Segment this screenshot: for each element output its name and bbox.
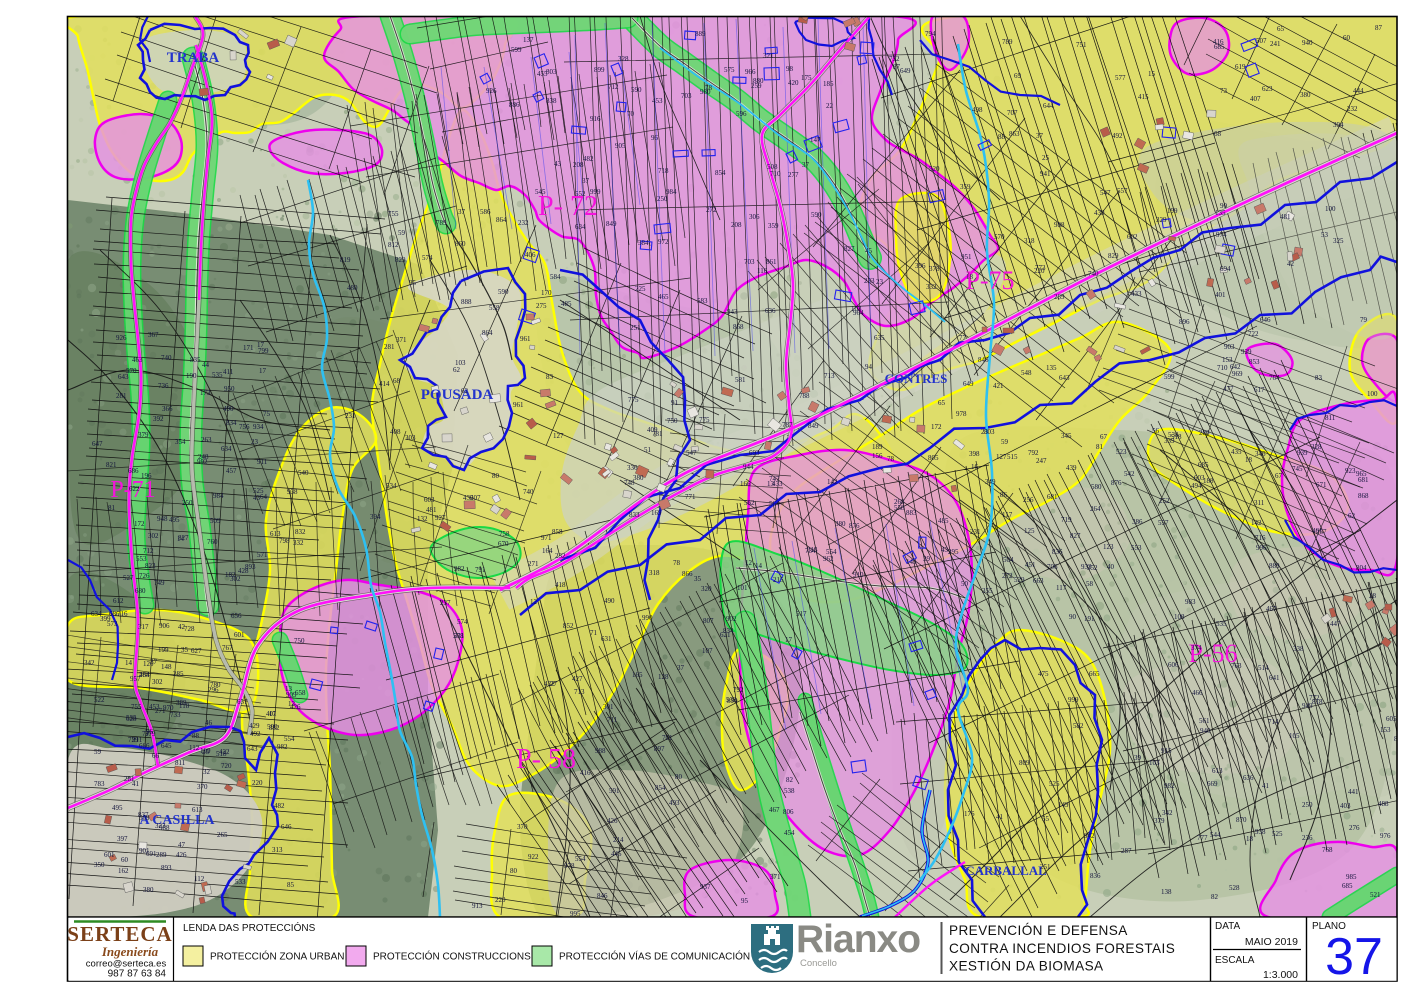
- svg-text:281: 281: [384, 343, 395, 351]
- svg-text:421: 421: [993, 382, 1004, 390]
- svg-text:835: 835: [190, 356, 201, 364]
- svg-text:714: 714: [1268, 718, 1279, 726]
- svg-text:370: 370: [197, 783, 208, 791]
- svg-text:16: 16: [971, 463, 979, 471]
- svg-text:120: 120: [143, 660, 154, 668]
- svg-text:517: 517: [796, 610, 807, 618]
- svg-text:37: 37: [677, 664, 685, 672]
- svg-text:CONTRES: CONTRES: [885, 371, 948, 386]
- svg-text:414: 414: [379, 380, 390, 388]
- svg-text:590: 590: [631, 86, 642, 94]
- svg-text:418: 418: [555, 581, 566, 589]
- svg-text:105: 105: [1289, 732, 1300, 740]
- svg-text:957: 957: [130, 675, 141, 683]
- svg-text:752: 752: [889, 55, 900, 63]
- svg-text:A CASILLA: A CASILLA: [139, 813, 215, 828]
- svg-text:109: 109: [200, 747, 211, 755]
- svg-text:463: 463: [132, 356, 143, 364]
- svg-text:100: 100: [1367, 390, 1378, 398]
- svg-text:137: 137: [523, 36, 534, 44]
- svg-text:544: 544: [1210, 831, 1221, 839]
- svg-text:78: 78: [673, 559, 681, 567]
- svg-text:961: 961: [520, 335, 531, 343]
- svg-text:43: 43: [941, 546, 949, 554]
- svg-text:59: 59: [1001, 438, 1009, 446]
- svg-text:990: 990: [642, 614, 653, 622]
- svg-text:73: 73: [1220, 87, 1228, 95]
- svg-text:490: 490: [604, 597, 615, 605]
- svg-text:252: 252: [1159, 497, 1170, 505]
- svg-text:77: 77: [142, 730, 150, 738]
- svg-text:518: 518: [1171, 433, 1182, 441]
- svg-text:535: 535: [1216, 620, 1227, 628]
- svg-text:934: 934: [253, 423, 264, 431]
- svg-text:46: 46: [205, 719, 213, 727]
- svg-text:603: 603: [1194, 474, 1205, 482]
- svg-text:POUSADA: POUSADA: [421, 387, 494, 403]
- svg-text:366: 366: [162, 405, 173, 413]
- svg-text:846: 846: [597, 892, 608, 900]
- svg-text:380: 380: [835, 520, 846, 528]
- svg-text:504: 504: [1003, 556, 1014, 564]
- svg-text:149: 149: [1058, 801, 1069, 809]
- svg-text:147: 147: [810, 136, 821, 144]
- svg-text:666: 666: [139, 742, 150, 750]
- svg-text:107: 107: [702, 647, 713, 655]
- svg-text:461: 461: [1312, 527, 1323, 535]
- svg-text:328: 328: [1311, 443, 1322, 451]
- svg-text:490: 490: [223, 405, 234, 413]
- svg-text:428: 428: [238, 567, 249, 575]
- svg-text:961: 961: [513, 401, 524, 409]
- svg-text:65: 65: [938, 399, 946, 407]
- svg-text:950: 950: [224, 385, 235, 393]
- svg-text:482: 482: [583, 155, 594, 163]
- svg-text:909: 909: [286, 691, 297, 699]
- svg-text:332: 332: [293, 539, 304, 547]
- svg-text:740: 740: [1088, 270, 1099, 278]
- svg-text:371: 371: [396, 336, 407, 344]
- svg-text:367: 367: [148, 331, 159, 339]
- svg-text:43: 43: [253, 494, 261, 502]
- svg-text:570: 570: [994, 233, 1005, 241]
- svg-text:590: 590: [811, 211, 822, 219]
- svg-text:561: 561: [1199, 717, 1210, 725]
- svg-text:41: 41: [1262, 782, 1270, 790]
- svg-text:342: 342: [84, 659, 95, 667]
- svg-text:62: 62: [453, 366, 461, 374]
- svg-text:Concello: Concello: [800, 958, 837, 969]
- svg-text:854: 854: [715, 169, 726, 177]
- svg-text:896: 896: [1179, 318, 1190, 326]
- svg-text:380: 380: [143, 886, 154, 894]
- svg-text:453: 453: [149, 703, 160, 711]
- svg-text:422: 422: [219, 748, 230, 756]
- svg-text:495: 495: [169, 516, 180, 524]
- svg-text:612: 612: [113, 597, 124, 605]
- svg-text:345: 345: [1061, 432, 1072, 440]
- svg-text:408: 408: [390, 428, 401, 436]
- svg-text:301: 301: [603, 703, 614, 711]
- svg-text:599: 599: [511, 46, 522, 54]
- svg-text:691: 691: [146, 850, 157, 858]
- svg-text:809: 809: [1019, 759, 1030, 767]
- svg-text:868: 868: [733, 323, 744, 331]
- svg-text:603: 603: [424, 496, 435, 504]
- svg-text:937: 937: [700, 883, 711, 891]
- svg-text:176: 176: [964, 810, 975, 818]
- svg-text:583: 583: [697, 297, 708, 305]
- svg-text:944: 944: [743, 463, 754, 471]
- svg-text:923: 923: [1345, 467, 1356, 475]
- svg-text:755: 755: [131, 703, 142, 711]
- svg-text:649: 649: [900, 67, 911, 75]
- svg-text:103: 103: [1149, 759, 1160, 767]
- svg-text:302: 302: [152, 678, 163, 686]
- svg-text:712: 712: [143, 547, 154, 555]
- svg-text:250: 250: [1302, 801, 1313, 809]
- svg-text:247: 247: [1036, 457, 1047, 465]
- svg-text:83: 83: [1315, 374, 1323, 382]
- svg-text:942: 942: [1084, 832, 1095, 840]
- svg-text:191: 191: [1084, 615, 1095, 623]
- svg-text:285: 285: [173, 670, 184, 678]
- svg-text:25: 25: [1042, 154, 1050, 162]
- svg-text:1:3.000: 1:3.000: [1263, 969, 1298, 981]
- svg-text:407: 407: [1250, 95, 1261, 103]
- svg-text:685: 685: [1342, 882, 1353, 890]
- svg-text:495: 495: [112, 804, 123, 812]
- svg-text:359: 359: [960, 183, 971, 191]
- svg-text:338: 338: [1293, 645, 1304, 653]
- svg-text:447: 447: [1330, 620, 1341, 628]
- svg-text:68: 68: [393, 377, 401, 385]
- svg-text:220: 220: [252, 779, 263, 787]
- svg-text:SERTECA: SERTECA: [67, 922, 172, 946]
- svg-text:196: 196: [141, 472, 152, 480]
- svg-text:760: 760: [207, 538, 218, 546]
- svg-text:231: 231: [345, 412, 356, 420]
- svg-text:493: 493: [669, 799, 680, 807]
- svg-text:190: 190: [186, 372, 197, 380]
- svg-text:525: 525: [1049, 780, 1060, 788]
- svg-text:62: 62: [1348, 512, 1356, 520]
- svg-text:467: 467: [1266, 605, 1277, 613]
- svg-text:466: 466: [1192, 689, 1203, 697]
- svg-text:281: 281: [116, 392, 127, 400]
- svg-text:482: 482: [274, 802, 285, 810]
- svg-text:439: 439: [1066, 464, 1077, 472]
- svg-text:913: 913: [472, 902, 483, 910]
- svg-text:889: 889: [1269, 562, 1280, 570]
- svg-text:23: 23: [981, 428, 989, 436]
- svg-text:527: 527: [123, 574, 134, 582]
- svg-text:943: 943: [727, 308, 738, 316]
- svg-text:117: 117: [1056, 584, 1067, 592]
- svg-text:758: 758: [499, 530, 510, 538]
- svg-text:726: 726: [139, 572, 150, 580]
- svg-text:529: 529: [1014, 576, 1025, 584]
- svg-text:978: 978: [956, 410, 967, 418]
- svg-text:12: 12: [745, 559, 753, 567]
- svg-text:90: 90: [1069, 613, 1077, 621]
- svg-text:671: 671: [1316, 481, 1327, 489]
- svg-text:911: 911: [257, 458, 268, 466]
- svg-text:18: 18: [1245, 456, 1253, 464]
- svg-text:643: 643: [247, 745, 258, 753]
- svg-text:706: 706: [1047, 563, 1058, 571]
- svg-text:380: 380: [1300, 91, 1311, 99]
- svg-text:272: 272: [706, 206, 717, 214]
- svg-text:401: 401: [1215, 291, 1226, 299]
- svg-text:236: 236: [1302, 834, 1313, 842]
- svg-text:188: 188: [1203, 477, 1214, 485]
- svg-text:81: 81: [108, 504, 116, 512]
- svg-text:868: 868: [1358, 492, 1369, 500]
- svg-text:613: 613: [1212, 767, 1223, 775]
- svg-text:17: 17: [269, 710, 277, 718]
- svg-text:384: 384: [638, 239, 649, 247]
- svg-text:116: 116: [757, 267, 768, 275]
- svg-text:Ingeniería: Ingeniería: [101, 944, 159, 959]
- svg-text:18: 18: [966, 273, 974, 281]
- svg-text:480: 480: [347, 284, 358, 292]
- svg-text:185: 185: [823, 80, 834, 88]
- svg-text:571: 571: [257, 551, 268, 559]
- svg-text:439: 439: [1094, 209, 1105, 217]
- svg-text:601: 601: [104, 851, 115, 859]
- svg-text:915: 915: [1161, 747, 1172, 755]
- svg-text:812: 812: [388, 241, 399, 249]
- svg-text:411: 411: [223, 368, 234, 376]
- svg-text:DATA: DATA: [1215, 921, 1241, 932]
- svg-text:277: 277: [788, 171, 799, 179]
- svg-text:941: 941: [1040, 170, 1051, 178]
- svg-text:635: 635: [874, 334, 885, 342]
- svg-text:77: 77: [959, 334, 967, 342]
- svg-text:451: 451: [1025, 561, 1036, 569]
- svg-text:938: 938: [1255, 828, 1266, 836]
- svg-text:926: 926: [486, 87, 497, 95]
- svg-text:415: 415: [1138, 93, 1149, 101]
- svg-text:507: 507: [1256, 37, 1267, 45]
- svg-text:80: 80: [675, 773, 683, 781]
- svg-text:888: 888: [461, 298, 472, 306]
- svg-text:574: 574: [422, 254, 433, 262]
- svg-text:379: 379: [138, 431, 149, 439]
- svg-text:PROTECCIÓN CONSTRUCCIONS: PROTECCIÓN CONSTRUCCIONS: [373, 950, 531, 963]
- svg-text:403: 403: [1340, 802, 1351, 810]
- svg-text:80: 80: [510, 867, 518, 875]
- svg-text:554: 554: [284, 735, 295, 743]
- svg-text:670: 670: [498, 540, 509, 548]
- svg-text:272: 272: [1002, 572, 1013, 580]
- svg-text:982: 982: [1164, 782, 1175, 790]
- svg-text:978: 978: [564, 862, 575, 870]
- svg-text:980: 980: [700, 88, 711, 96]
- svg-text:37: 37: [582, 177, 590, 185]
- svg-text:906: 906: [159, 622, 170, 630]
- svg-text:829: 829: [1108, 252, 1119, 260]
- svg-text:371: 371: [770, 873, 781, 881]
- svg-text:982: 982: [277, 743, 288, 751]
- svg-text:893: 893: [161, 864, 172, 872]
- svg-text:876: 876: [1111, 479, 1122, 487]
- svg-text:35: 35: [181, 646, 189, 654]
- svg-text:79: 79: [1360, 316, 1368, 324]
- svg-text:349: 349: [985, 478, 996, 486]
- svg-text:90: 90: [1220, 202, 1228, 210]
- svg-text:69: 69: [1014, 72, 1022, 80]
- svg-text:123: 123: [1103, 543, 1114, 551]
- svg-text:806: 806: [783, 808, 794, 816]
- svg-text:710: 710: [1217, 364, 1228, 372]
- svg-text:189: 189: [872, 443, 883, 451]
- svg-text:562: 562: [744, 499, 755, 507]
- svg-text:435: 435: [1231, 448, 1242, 456]
- svg-text:303: 303: [405, 434, 416, 442]
- svg-text:275: 275: [536, 302, 547, 310]
- svg-text:ESCALA: ESCALA: [1215, 955, 1255, 966]
- svg-text:819: 819: [340, 256, 351, 264]
- svg-text:318: 318: [1024, 237, 1035, 245]
- svg-text:232: 232: [555, 552, 566, 560]
- svg-text:969: 969: [1232, 370, 1243, 378]
- svg-text:295: 295: [948, 548, 959, 556]
- svg-text:938: 938: [287, 488, 298, 496]
- svg-text:220: 220: [1034, 267, 1045, 275]
- svg-text:86: 86: [1000, 491, 1008, 499]
- svg-text:65: 65: [1277, 25, 1285, 33]
- svg-text:454: 454: [784, 829, 795, 837]
- svg-text:317: 317: [138, 623, 149, 631]
- svg-text:58: 58: [1086, 580, 1094, 588]
- svg-text:488: 488: [139, 671, 150, 679]
- svg-text:622: 622: [129, 485, 140, 493]
- svg-text:771: 771: [685, 493, 696, 501]
- svg-text:276: 276: [1349, 824, 1360, 832]
- svg-text:783: 783: [94, 780, 105, 788]
- svg-text:328: 328: [618, 55, 629, 63]
- svg-text:289: 289: [1054, 293, 1065, 301]
- svg-text:792: 792: [733, 686, 744, 694]
- svg-text:445: 445: [611, 850, 622, 858]
- svg-text:713: 713: [824, 372, 835, 380]
- svg-text:777: 777: [1197, 834, 1208, 842]
- svg-text:47: 47: [178, 841, 186, 849]
- svg-text:554: 554: [575, 855, 586, 863]
- svg-text:821: 821: [106, 461, 117, 469]
- svg-text:173: 173: [200, 389, 211, 397]
- svg-text:553: 553: [136, 555, 147, 563]
- svg-text:332: 332: [926, 283, 937, 291]
- svg-text:646: 646: [281, 823, 292, 831]
- svg-text:834: 834: [226, 419, 237, 427]
- svg-text:17: 17: [785, 636, 793, 644]
- svg-text:302: 302: [148, 532, 159, 540]
- svg-text:643: 643: [1059, 374, 1070, 382]
- svg-text:40: 40: [1107, 563, 1115, 571]
- svg-text:427: 427: [572, 675, 583, 683]
- svg-text:890: 890: [727, 697, 738, 705]
- svg-text:498: 498: [972, 106, 983, 114]
- svg-text:117: 117: [1002, 511, 1013, 519]
- svg-text:444: 444: [1353, 87, 1364, 95]
- svg-text:23: 23: [876, 278, 884, 286]
- svg-text:999: 999: [590, 188, 601, 196]
- svg-text:811: 811: [175, 759, 186, 767]
- svg-text:719: 719: [1061, 516, 1072, 524]
- svg-text:488: 488: [1378, 800, 1389, 808]
- svg-text:834: 834: [723, 627, 734, 635]
- svg-text:557: 557: [1117, 187, 1128, 195]
- svg-text:772: 772: [1309, 694, 1320, 702]
- svg-text:827: 827: [1070, 532, 1081, 540]
- svg-text:143: 143: [906, 558, 917, 566]
- svg-text:422: 422: [544, 680, 555, 688]
- svg-text:492: 492: [1112, 132, 1123, 140]
- svg-text:TRABA: TRABA: [167, 50, 220, 66]
- svg-text:642: 642: [1230, 363, 1241, 371]
- svg-text:88: 88: [192, 732, 200, 740]
- svg-text:14: 14: [755, 562, 763, 570]
- svg-text:14: 14: [125, 659, 133, 667]
- svg-text:51: 51: [644, 446, 652, 454]
- svg-text:17: 17: [257, 341, 265, 349]
- svg-text:355: 355: [982, 587, 993, 595]
- svg-text:789: 789: [436, 219, 447, 227]
- svg-text:927: 927: [435, 514, 446, 522]
- svg-text:832: 832: [295, 528, 306, 536]
- svg-text:80: 80: [492, 472, 500, 480]
- svg-text:165: 165: [632, 671, 643, 679]
- svg-text:605: 605: [1386, 715, 1397, 723]
- svg-text:686: 686: [128, 467, 139, 475]
- svg-text:166: 166: [740, 480, 751, 488]
- svg-text:767: 767: [222, 644, 233, 652]
- svg-text:70: 70: [627, 110, 635, 118]
- svg-text:631: 631: [601, 635, 612, 643]
- svg-text:636: 636: [765, 307, 776, 315]
- svg-text:374: 374: [1191, 644, 1202, 652]
- svg-text:251: 251: [630, 324, 641, 332]
- svg-text:LENDA DAS PROTECCIÓNS: LENDA DAS PROTECCIÓNS: [183, 921, 316, 934]
- svg-text:870: 870: [1236, 816, 1247, 824]
- svg-text:905: 905: [615, 142, 626, 150]
- svg-text:933: 933: [1081, 563, 1092, 571]
- svg-text:108: 108: [1174, 613, 1185, 621]
- svg-text:264: 264: [1090, 505, 1101, 513]
- svg-text:716: 716: [117, 610, 128, 618]
- svg-text:420: 420: [788, 79, 799, 87]
- svg-text:289: 289: [156, 851, 167, 859]
- svg-text:750: 750: [667, 417, 678, 425]
- svg-text:722: 722: [1248, 330, 1259, 338]
- svg-text:208: 208: [731, 221, 742, 229]
- svg-text:475: 475: [1038, 670, 1049, 678]
- svg-text:172: 172: [931, 423, 942, 431]
- svg-text:329: 329: [1156, 216, 1167, 224]
- svg-text:582: 582: [1073, 722, 1084, 730]
- svg-text:547: 547: [1100, 189, 1111, 197]
- svg-text:553: 553: [1131, 544, 1142, 552]
- svg-text:37: 37: [1325, 928, 1383, 986]
- svg-text:521: 521: [1370, 891, 1381, 899]
- svg-text:525: 525: [1272, 830, 1283, 838]
- svg-text:849: 849: [606, 220, 617, 228]
- svg-text:169: 169: [651, 509, 662, 517]
- svg-text:23: 23: [251, 438, 259, 446]
